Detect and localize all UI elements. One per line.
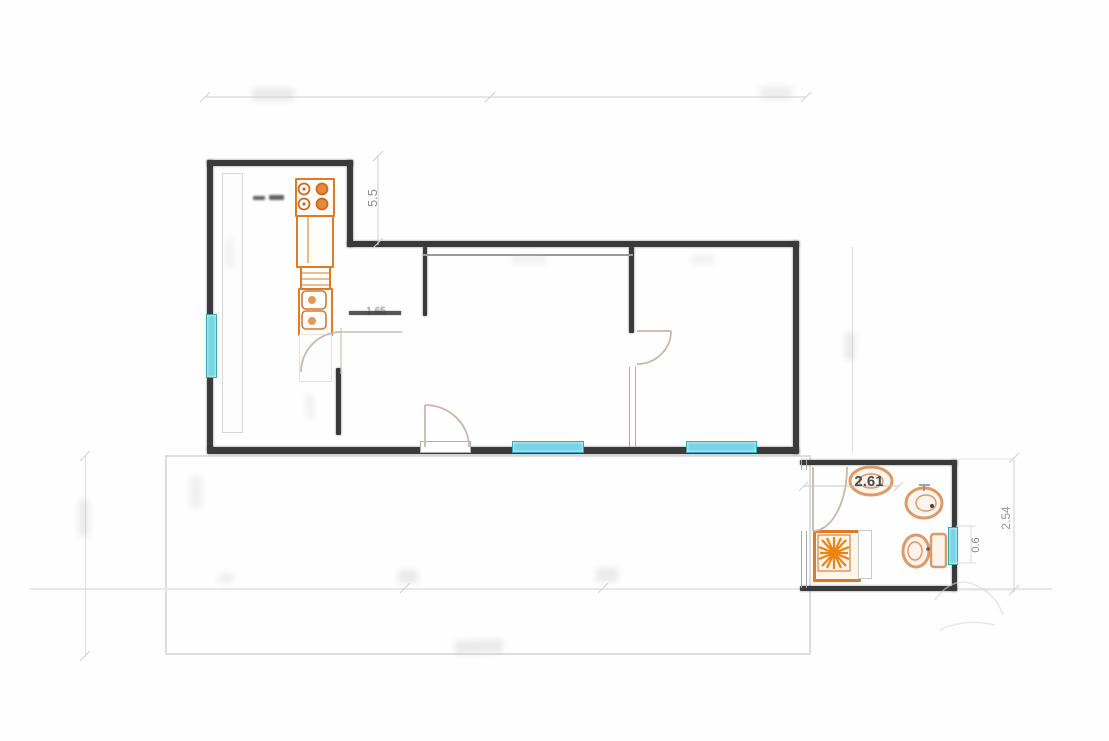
door-arc-icon — [301, 328, 847, 531]
floor-plan-canvas: 5.5 2.61 1.65 2.54 0.6 — [0, 0, 1109, 741]
dimension-lines — [80, 92, 1019, 661]
fixtures-overlay: 5.5 2.61 1.65 2.54 0.6 — [0, 0, 1109, 741]
right-side-height-label: 2.54 — [999, 506, 1013, 530]
bathroom-width-label: 2.61 — [854, 473, 883, 490]
kitchen-sink-icon — [302, 291, 326, 329]
faint-scribbles — [935, 582, 1003, 630]
shower-sunburst-icon — [818, 535, 850, 571]
hall-width-label: 1.65 — [366, 306, 386, 317]
toilet-icon — [903, 534, 946, 567]
stove-burners-icon — [299, 184, 328, 210]
bidet-icon — [906, 485, 942, 518]
bathroom-window-width-label: 0.6 — [970, 537, 982, 552]
kitchen-height-label: 5.5 — [365, 189, 380, 207]
